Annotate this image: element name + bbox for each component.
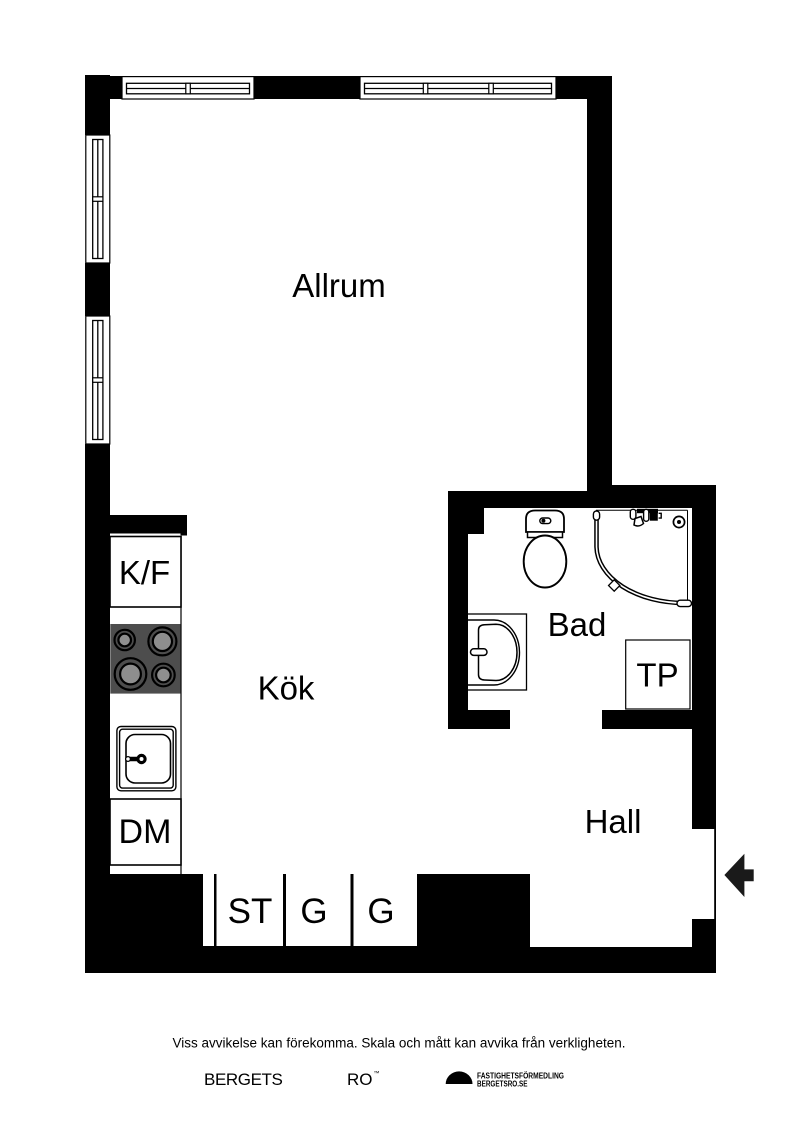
svg-text:DM: DM [119, 813, 172, 851]
svg-text:Kök: Kök [258, 670, 315, 707]
svg-text:G: G [300, 892, 327, 931]
svg-text:Allrum: Allrum [292, 267, 386, 304]
svg-text:K/F: K/F [119, 554, 170, 591]
svg-text:TP: TP [636, 657, 678, 694]
svg-text:BERGETS: BERGETS [204, 1070, 283, 1089]
svg-text:BERGETSRO.SE: BERGETSRO.SE [477, 1080, 528, 1089]
svg-text:Bad: Bad [548, 606, 607, 643]
svg-text:G: G [367, 892, 394, 931]
svg-text:Viss avvikelse kan förekomma.: Viss avvikelse kan förekomma. Skala och … [173, 1036, 626, 1051]
svg-text:Hall: Hall [585, 803, 642, 840]
svg-text:™: ™ [374, 1070, 380, 1077]
svg-text:RO: RO [347, 1070, 373, 1089]
svg-text:ST: ST [228, 892, 273, 931]
